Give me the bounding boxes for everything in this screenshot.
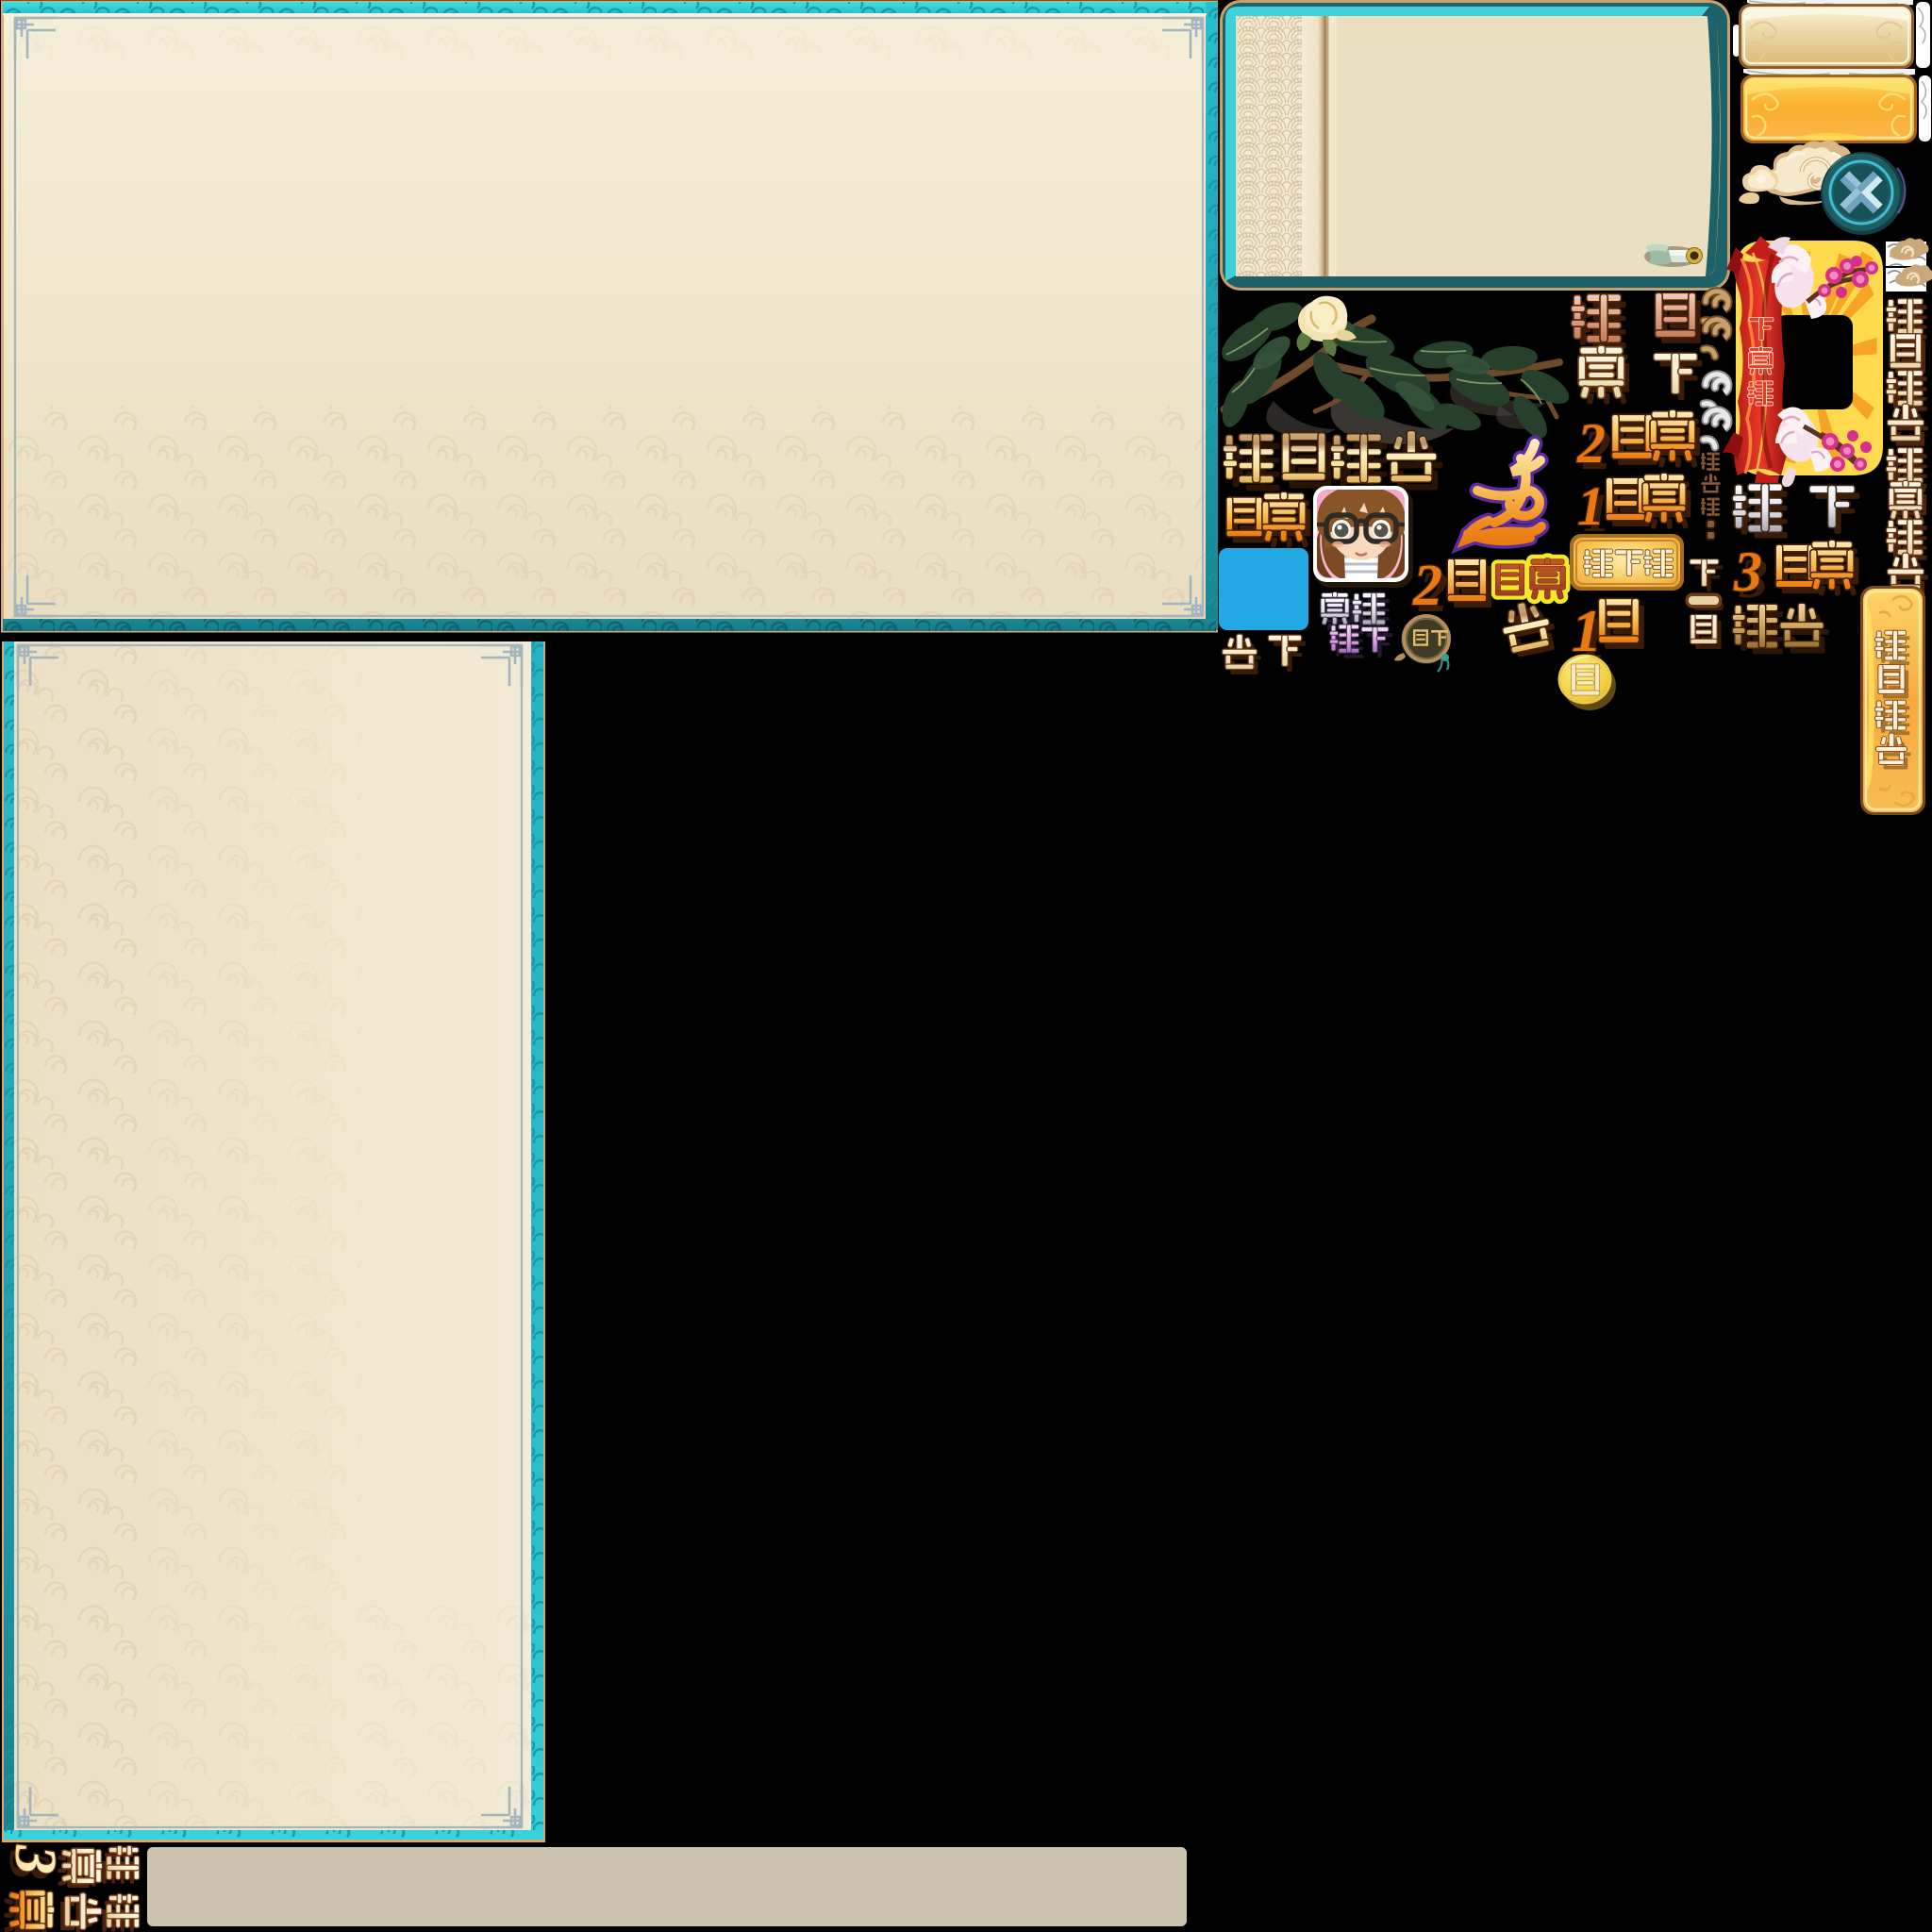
svg-text:1: 1 (1577, 475, 1605, 537)
svg-text:3: 3 (1733, 541, 1762, 603)
svg-text:2: 2 (1576, 412, 1606, 475)
svg-text:1: 1 (1572, 597, 1602, 664)
svg-text:2: 2 (1412, 554, 1442, 618)
svg-text:3: 3 (3, 1844, 67, 1874)
